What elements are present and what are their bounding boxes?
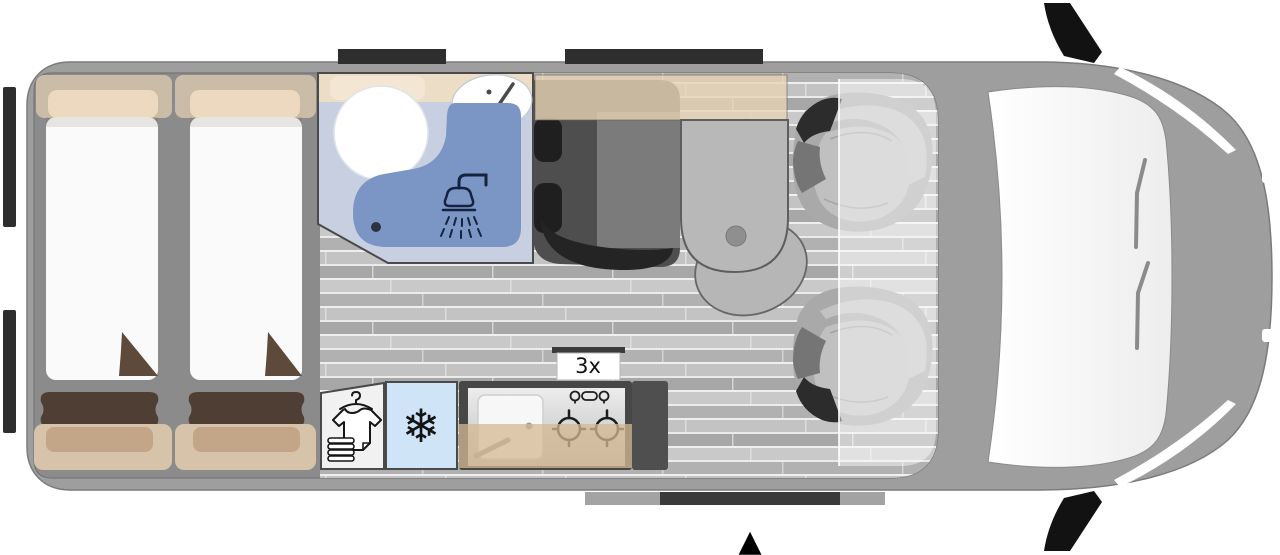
shower-tray-swivel — [334, 86, 428, 180]
pillow-right — [189, 392, 305, 427]
entry-step-bar — [585, 492, 885, 505]
mattress-shadow-left — [46, 117, 158, 127]
mattress-shadow-right — [190, 117, 302, 127]
campervan-floorplan: ▲ — [0, 0, 1280, 555]
shower-drain — [371, 222, 381, 232]
burner-count-label: 3x — [552, 347, 625, 380]
headboard-cushion-left — [48, 90, 158, 118]
front-seam-bottom — [1262, 329, 1280, 342]
bathroom — [318, 71, 535, 263]
dinette-seat-cushion — [597, 112, 680, 248]
roof-window-bar-1 — [338, 49, 446, 64]
kitchen-unit — [459, 381, 668, 470]
mattress-left — [46, 117, 158, 380]
headboard-cushion-right — [190, 90, 300, 118]
mattress-right — [190, 117, 302, 380]
table-main-leaf — [681, 120, 788, 272]
rear-window-bar-upper — [3, 87, 16, 227]
wardrobe — [321, 383, 384, 469]
overhead-cabinet-dinette — [535, 75, 787, 120]
front-seam-top — [1262, 171, 1280, 183]
svg-text:3x: 3x — [575, 354, 601, 378]
table-leg — [726, 226, 746, 246]
dinette-headrest-1 — [534, 118, 562, 162]
snowflake-icon: ❄ — [402, 399, 441, 453]
roof-window-bar-2 — [565, 49, 763, 64]
rear-window-bar-lower — [3, 310, 16, 433]
entrance-arrow-icon: ▲ — [738, 524, 761, 555]
tall-cabinet — [632, 381, 668, 470]
floorplan-canvas: ▲ — [0, 0, 1280, 555]
fridge: ❄ — [386, 382, 457, 469]
kitchen-counter-overlay — [459, 424, 632, 468]
foot-bench-cushion-right — [193, 427, 300, 452]
dinette-headrest-2 — [534, 183, 562, 233]
side-mirror-top-icon — [1044, 3, 1102, 63]
foot-bench-cushion-left — [46, 427, 153, 452]
dropdown-bed-overlay — [839, 79, 936, 466]
side-mirror-bottom-icon — [1044, 491, 1102, 551]
pillow-left — [41, 392, 159, 427]
